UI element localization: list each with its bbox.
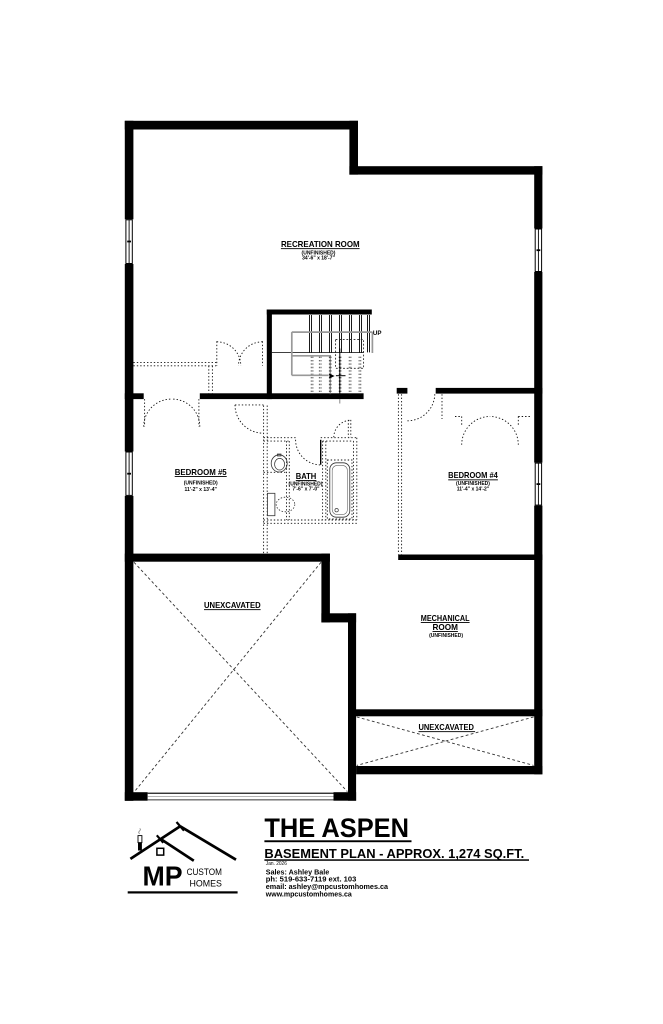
svg-text:CUSTOM: CUSTOM [187, 867, 222, 878]
svg-text:Jan. 2026: Jan. 2026 [266, 861, 287, 867]
svg-text:THE ASPEN: THE ASPEN [264, 813, 409, 843]
svg-text:BASEMENT PLAN - APPROX. 1,274: BASEMENT PLAN - APPROX. 1,274 SQ.FT. [264, 846, 524, 861]
svg-text:RECREATION ROOM: RECREATION ROOM [281, 240, 360, 249]
svg-text:MP: MP [143, 861, 183, 892]
svg-text:BEDROOM #5: BEDROOM #5 [175, 468, 227, 477]
svg-text:BEDROOM #4: BEDROOM #4 [448, 471, 498, 480]
svg-text:(UNFINISHED): (UNFINISHED) [429, 633, 463, 639]
svg-text:34'-6" x 18'-7": 34'-6" x 18'-7" [302, 255, 335, 261]
svg-text:UNEXCAVATED: UNEXCAVATED [204, 601, 261, 610]
svg-text:BATH: BATH [296, 472, 317, 481]
svg-text:(UNFINISHED): (UNFINISHED) [184, 480, 218, 486]
svg-text:UP: UP [373, 330, 382, 337]
svg-text:MECHANICAL: MECHANICAL [421, 614, 470, 623]
svg-text:UNEXCAVATED: UNEXCAVATED [418, 723, 474, 732]
svg-text:11'-2" x 13'-4": 11'-2" x 13'-4" [184, 487, 217, 493]
svg-text:HOMES: HOMES [190, 879, 222, 890]
svg-text:11'-4" x 14'-2": 11'-4" x 14'-2" [457, 487, 490, 493]
svg-text:www.mpcustomhomes.ca: www.mpcustomhomes.ca [265, 889, 353, 898]
svg-text:7'-6" x 7'-0": 7'-6" x 7'-0" [292, 486, 320, 492]
svg-text:ROOM: ROOM [432, 623, 458, 632]
